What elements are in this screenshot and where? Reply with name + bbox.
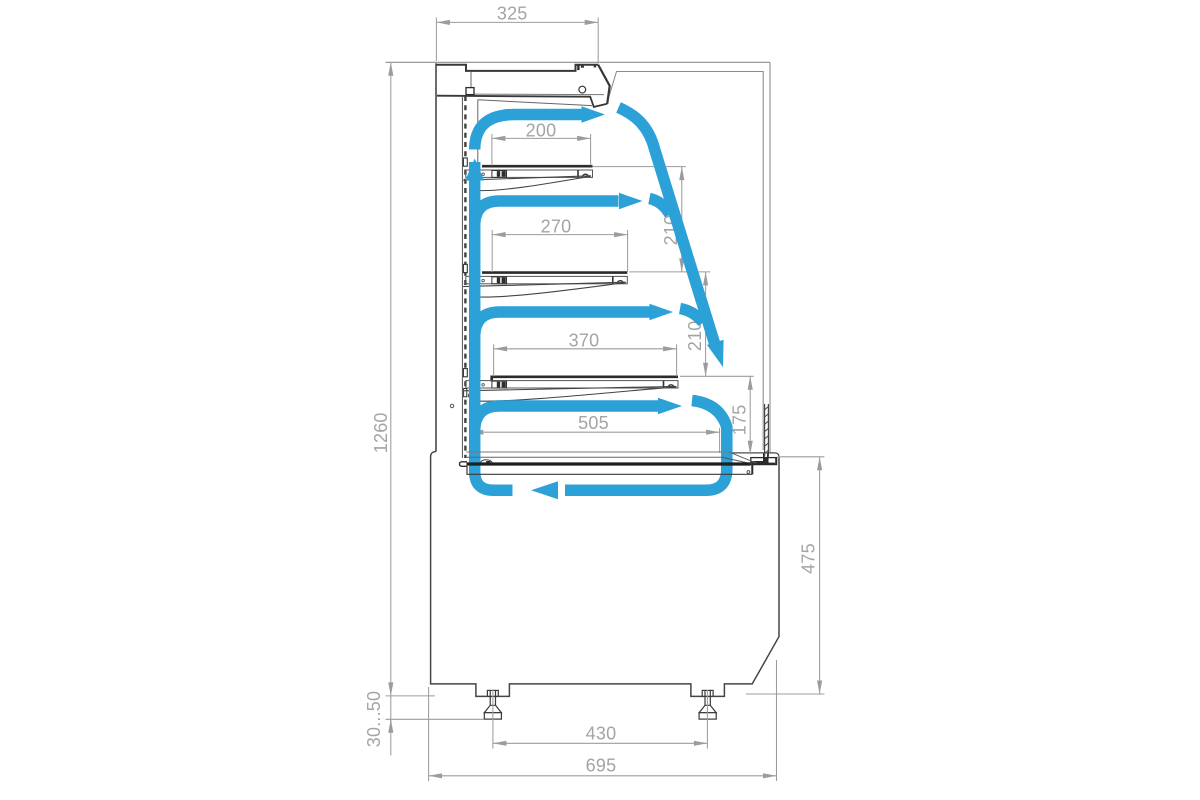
svg-text:430: 430 xyxy=(586,723,617,743)
svg-text:1260: 1260 xyxy=(371,412,391,453)
svg-text:30...50: 30...50 xyxy=(364,691,384,747)
svg-text:370: 370 xyxy=(569,331,600,351)
svg-text:270: 270 xyxy=(541,217,572,237)
svg-text:505: 505 xyxy=(578,413,609,433)
svg-text:325: 325 xyxy=(497,3,528,23)
svg-text:200: 200 xyxy=(526,120,557,140)
svg-text:475: 475 xyxy=(799,543,819,574)
svg-text:695: 695 xyxy=(586,756,617,776)
svg-text:175: 175 xyxy=(730,405,750,436)
svg-text:210: 210 xyxy=(685,320,705,351)
